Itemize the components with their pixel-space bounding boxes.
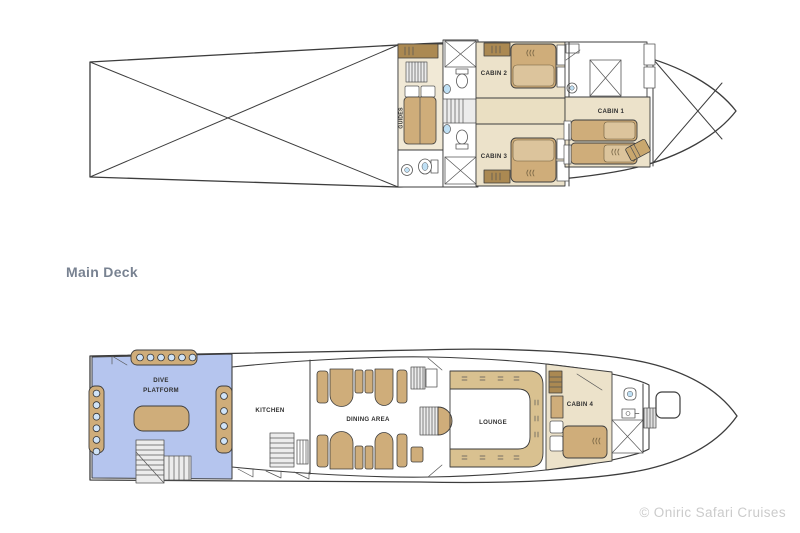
cabin-3: CABIN 3 — [476, 124, 569, 186]
cabin-4: CABIN 4 — [546, 364, 612, 470]
cabin-4-label: CABIN 4 — [567, 401, 594, 408]
dive-platform: DIVE PLATFORM — [89, 350, 232, 483]
lounge-label: LOUNGE — [479, 419, 507, 426]
copyright-text: © Oniric Safari Cruises — [639, 505, 786, 520]
cabin-4-bed — [563, 426, 607, 458]
shower-icon — [445, 41, 476, 67]
cabin-3-label: CABIN 3 — [481, 153, 508, 160]
main-deck-heading: Main Deck — [66, 264, 138, 280]
guides-cabinet — [398, 44, 438, 58]
guides-bathroom — [398, 150, 443, 187]
guides-label: GUIDES — [399, 107, 405, 129]
sink-icon — [402, 165, 413, 176]
shower-icon — [612, 420, 643, 453]
cabin-2-bed — [511, 44, 556, 88]
cabin-2: CABIN 2 — [476, 42, 569, 98]
cabin-1: CABIN 1 — [564, 42, 655, 186]
tank-bench-starboard — [216, 386, 232, 453]
toilet-icon — [624, 388, 636, 400]
toilet-icon — [419, 159, 439, 174]
main-deck-plan: DIVE PLATFORM KITCHEN — [89, 349, 737, 483]
dive-table — [134, 406, 189, 431]
cabin-3-bed — [511, 138, 556, 182]
tank-bench-port — [89, 386, 104, 455]
side-stairs — [411, 367, 437, 389]
cabin-2-label: CABIN 2 — [481, 70, 508, 77]
dive-platform-label-line1: DIVE — [153, 377, 168, 384]
shower-icon — [590, 60, 621, 96]
dive-platform-label-line2: PLATFORM — [143, 387, 179, 394]
upper-deck-plan: GUIDES — [90, 40, 736, 187]
stairs-up-icon — [443, 99, 476, 123]
dresser — [484, 170, 510, 183]
bow-hatch — [656, 392, 680, 418]
cabin-1-label: CABIN 1 — [598, 108, 625, 115]
deck-plan-page: GUIDES — [0, 0, 800, 533]
dresser — [551, 396, 563, 418]
guides-cabin: GUIDES — [398, 44, 443, 150]
shared-bathrooms — [443, 40, 478, 187]
shower-icon — [445, 157, 476, 184]
tank-bench-aft — [131, 350, 197, 365]
dresser — [484, 43, 510, 56]
dining-area-label: DINING AREA — [346, 416, 390, 423]
kitchen-label: KITCHEN — [255, 407, 284, 414]
